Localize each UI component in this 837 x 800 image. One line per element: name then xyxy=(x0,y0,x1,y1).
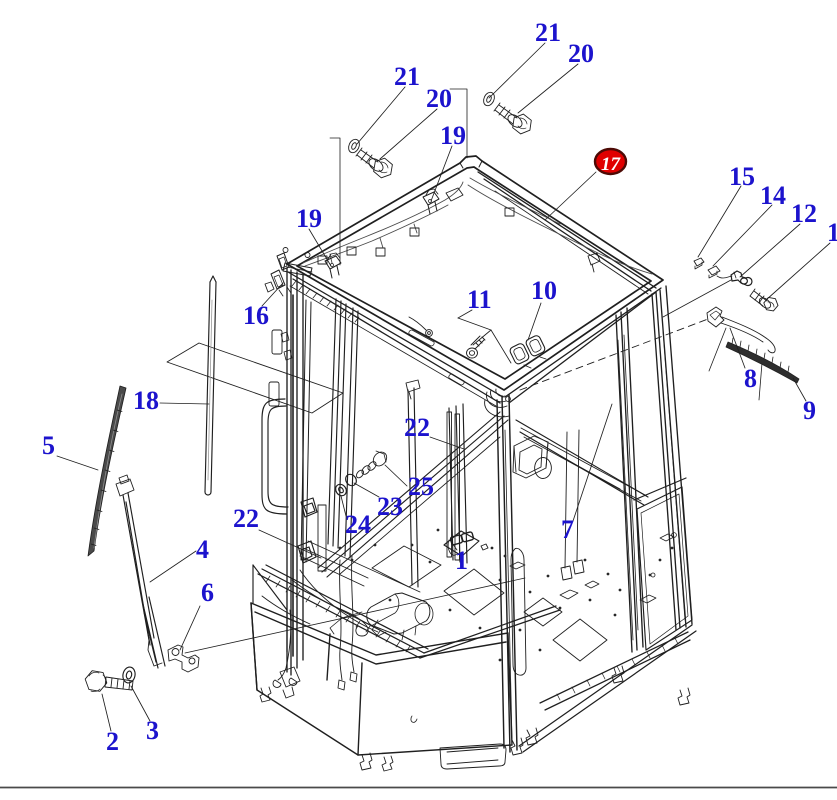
svg-text:2: 2 xyxy=(106,727,119,756)
svg-text:1: 1 xyxy=(455,546,468,575)
svg-text:23: 23 xyxy=(377,492,403,521)
svg-text:5: 5 xyxy=(42,431,55,460)
svg-text:17: 17 xyxy=(601,154,622,175)
svg-text:24: 24 xyxy=(345,510,371,539)
svg-text:18: 18 xyxy=(133,386,159,415)
svg-text:21: 21 xyxy=(535,18,561,47)
svg-text:3: 3 xyxy=(146,716,159,745)
svg-text:12: 12 xyxy=(791,199,817,228)
svg-text:22: 22 xyxy=(233,504,259,533)
svg-text:13: 13 xyxy=(827,218,837,247)
svg-text:4: 4 xyxy=(196,535,209,564)
svg-text:19: 19 xyxy=(296,204,322,233)
svg-text:16: 16 xyxy=(243,301,269,330)
svg-text:11: 11 xyxy=(467,285,492,314)
svg-text:22: 22 xyxy=(404,413,430,442)
svg-text:10: 10 xyxy=(531,276,557,305)
svg-text:21: 21 xyxy=(394,62,420,91)
svg-text:6: 6 xyxy=(201,578,214,607)
svg-text:14: 14 xyxy=(760,181,786,210)
svg-text:20: 20 xyxy=(568,39,594,68)
svg-text:8: 8 xyxy=(744,364,757,393)
svg-text:7: 7 xyxy=(561,515,574,544)
svg-text:25: 25 xyxy=(408,472,434,501)
svg-text:9: 9 xyxy=(803,396,816,425)
svg-text:19: 19 xyxy=(440,121,466,150)
svg-text:15: 15 xyxy=(729,162,755,191)
svg-text:20: 20 xyxy=(426,84,452,113)
